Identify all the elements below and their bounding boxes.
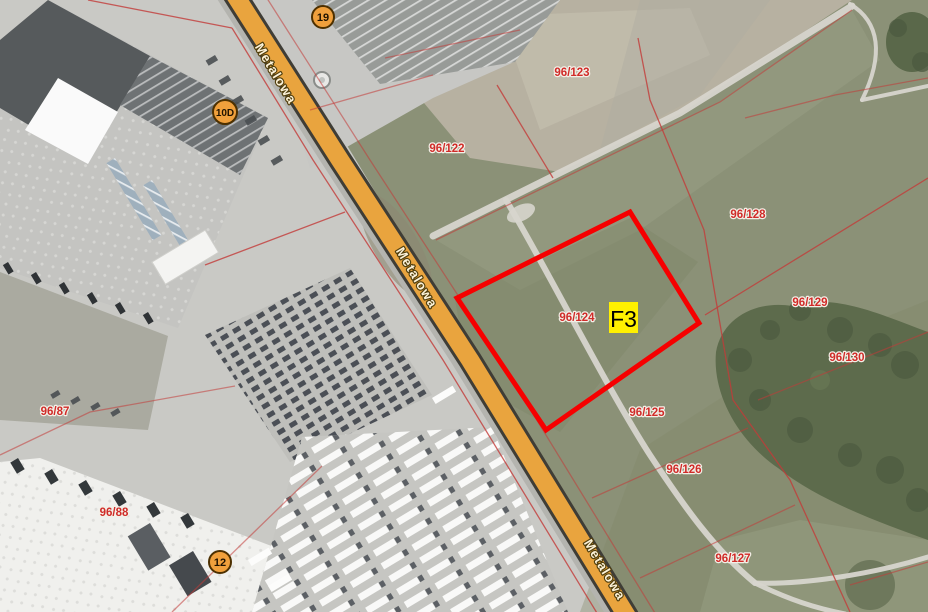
marker-19[interactable]: 19 xyxy=(312,6,334,28)
marker-19-label: 19 xyxy=(317,12,329,24)
parcel-label-96-128: 96/128 xyxy=(730,209,766,221)
map-viewport[interactable]: Metalowa Metalowa Metalowa 96/122 96/123… xyxy=(0,0,928,612)
parcel-label-96-126: 96/126 xyxy=(666,464,701,476)
parcel-label-96-124: 96/124 xyxy=(559,312,595,324)
parcel-label-96-127: 96/127 xyxy=(715,553,750,565)
marker-12-label: 12 xyxy=(214,557,226,569)
aerial-basemap: Metalowa Metalowa Metalowa 96/122 96/123… xyxy=(0,0,928,612)
highlight-label: F3 xyxy=(609,302,638,333)
highlight-label-text: F3 xyxy=(610,306,637,332)
parcel-label-96-130: 96/130 xyxy=(829,352,864,364)
parcel-label-96-123: 96/123 xyxy=(554,67,589,79)
parcel-label-96-125: 96/125 xyxy=(629,407,665,419)
parcel-label-96-129: 96/129 xyxy=(792,297,827,309)
marker-12[interactable]: 12 xyxy=(209,551,231,573)
parcel-label-96-122: 96/122 xyxy=(429,143,464,155)
parcel-label-96-88: 96/88 xyxy=(100,507,129,519)
marker-10d[interactable]: 10D xyxy=(213,100,237,124)
marker-10d-label: 10D xyxy=(216,108,234,119)
parcel-label-96-87: 96/87 xyxy=(41,406,70,418)
